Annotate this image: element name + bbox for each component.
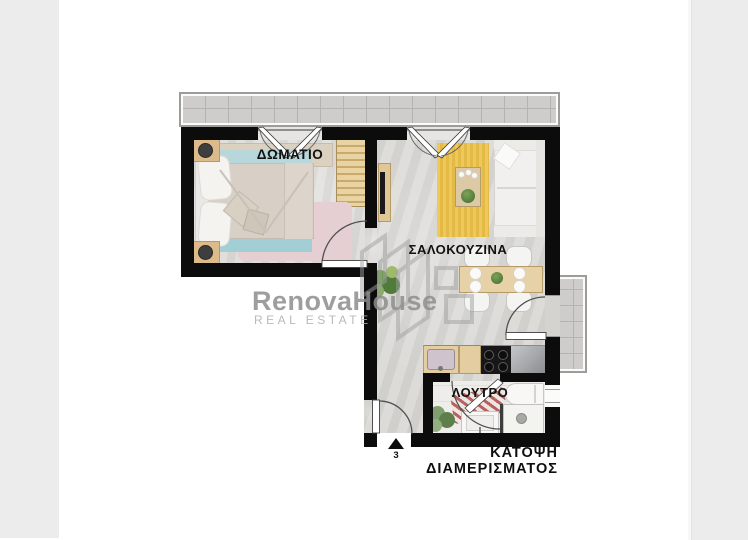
window-gap-living [407,127,470,140]
entrance-doorway-floor [364,400,377,433]
dining-plate-1 [469,267,482,280]
dining-plate-3 [469,280,482,293]
burner-3 [484,362,494,372]
stainless-counter [511,345,545,374]
wall-bath-west [423,373,433,447]
left-gray-panel [0,0,59,538]
dining-chair-4 [506,290,532,312]
bathroom-label: ΛΟΥΤΡΟ [440,385,520,400]
sofa-backrest [536,139,545,237]
top-terrace [179,92,560,127]
lamp-top [198,143,213,158]
dining-table-plant [491,272,503,284]
caption-line-2: ΔΙΑΜΕΡΙΣΜΑΤΟΣ [370,462,558,478]
tv-screen [380,172,385,214]
window-gap-bedroom [258,127,322,140]
wall-right-lower [545,407,560,447]
wall-divider [365,140,377,228]
wall-bedroom-bottom [181,263,377,277]
kitchen-counter-mid [459,345,481,374]
balcony-tiles [560,279,583,369]
right-balcony [556,275,587,373]
watermark-tagline: REAL ESTATE [254,313,372,327]
bathtub-line [534,385,536,403]
wall-bottom-corner [364,433,377,447]
bathroom-window-frame-line [545,389,560,390]
coffee-table-plate-1 [458,171,465,178]
balcony-doorway-threshold [545,295,560,337]
dining-plate-4 [513,280,526,293]
bedroom-doorway-floor [365,228,377,263]
bathroom-window-frame-line [545,402,560,403]
dining-plate-2 [513,267,526,280]
bathroom-window [545,385,560,407]
kitchen-faucet [438,366,443,371]
right-gray-panel [692,0,748,540]
shower-drain [516,413,527,424]
wall-right-middle [545,337,560,385]
lamp-bottom [198,245,213,260]
dining-chair-3 [464,290,490,312]
burner-1 [484,350,494,360]
bedroom-label: ΔΩΜΑΤΙΟ [235,147,345,162]
coffee-table-plant [461,189,475,203]
sofa-cushion-seam [497,187,536,189]
caption-line-1: ΚΑΤΟΨΗ [370,446,558,462]
wall-kitchen-bath-right [500,373,545,382]
burner-4 [498,362,508,372]
burner-2 [498,350,508,360]
floor-plan-page: ΔΩΜΑΤΙΟ ΣΑΛΟΚΟΥΖΙΝΑ ΛΟΥΤΡΟ RenovaHouse R… [0,0,748,540]
bed-duvet-fold [284,163,312,239]
living-kitchen-label: ΣΑΛΟΚΟΥΖΙΝΑ [398,242,518,257]
wall-top-middle [322,127,407,140]
plan-caption: ΚΑΤΟΨΗ ΔΙΑΜΕΡΙΣΜΑΤΟΣ [370,446,558,477]
wall-left [181,127,194,277]
sofa-armrest-bottom [494,225,536,237]
terrace-tiles [183,96,556,123]
plant-leaf [386,266,398,278]
coffee-table-plate-3 [471,172,478,179]
wall-right-upper [545,127,560,295]
